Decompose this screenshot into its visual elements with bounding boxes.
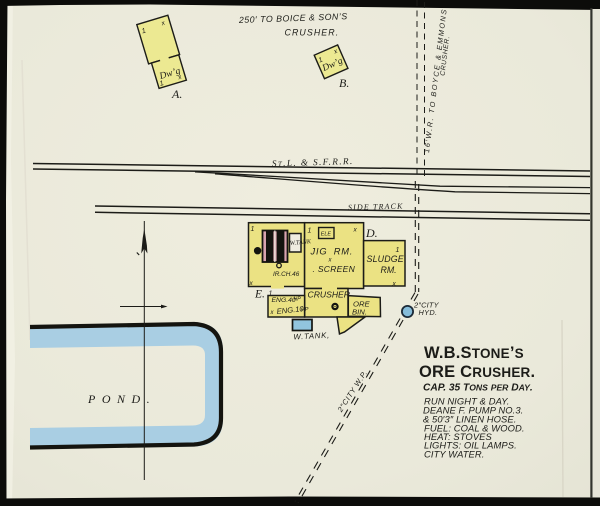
svg-text:1: 1	[396, 247, 400, 254]
svg-text:E.: E.	[254, 289, 265, 301]
svg-text:POND.: POND.	[87, 392, 156, 406]
svg-text:ELE: ELE	[321, 232, 332, 238]
svg-text:1: 1	[251, 226, 255, 233]
svg-text:SLUDGE: SLUDGE	[367, 254, 404, 264]
svg-text:ORE CRUSHER.: ORE CRUSHER.	[419, 363, 535, 381]
svg-text:A.: A.	[171, 87, 182, 101]
svg-text:D.: D.	[365, 226, 378, 240]
svg-text:W.TANK,: W.TANK,	[293, 331, 330, 342]
svg-text:. SCREEN: . SCREEN	[313, 264, 356, 274]
svg-text:RM.: RM.	[381, 265, 397, 275]
svg-text:CRUSHER.: CRUSHER.	[285, 28, 340, 38]
svg-text:CRUSHER: CRUSHER	[308, 290, 351, 300]
svg-text:BIN.: BIN.	[352, 308, 367, 317]
svg-text:HP: HP	[294, 297, 302, 303]
svg-text:JIG RM.: JIG RM.	[310, 247, 354, 257]
svg-text:IR.CH.46: IR.CH.46	[273, 271, 300, 278]
svg-text:CITY WATER.: CITY WATER.	[424, 449, 484, 460]
svg-text:CAP. 35 TONS PER DAY.: CAP. 35 TONS PER DAY.	[423, 383, 533, 394]
svg-text:1: 1	[308, 228, 312, 235]
svg-text:B.: B.	[339, 76, 349, 90]
svg-text:SIDE TRACK: SIDE TRACK	[348, 202, 404, 212]
svg-text:HYD.: HYD.	[419, 308, 438, 317]
svg-text:ENG.40: ENG.40	[272, 297, 296, 304]
svg-text:W.B.STONE’S: W.B.STONE’S	[424, 344, 524, 362]
svg-text:HP: HP	[301, 307, 310, 314]
